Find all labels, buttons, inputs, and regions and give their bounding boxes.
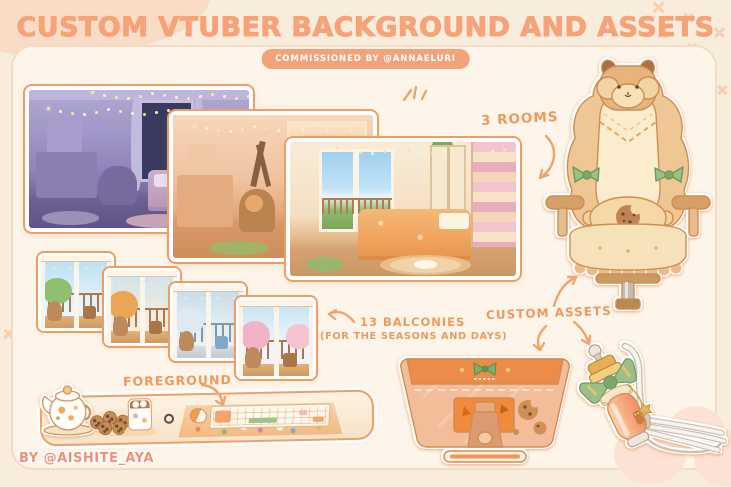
day-room-illustration <box>286 138 520 280</box>
balconies-label: 13 BALCONIES <box>360 315 465 329</box>
balcony-plush-chair <box>113 316 128 336</box>
day-room-pillow <box>439 213 468 229</box>
summer-foliage <box>42 278 71 304</box>
day-room-frog-rug <box>306 257 344 272</box>
rooms-arrow-icon <box>524 132 560 184</box>
fairy-lights-icon <box>177 295 179 297</box>
fairy-lights-icon <box>47 107 50 110</box>
fairy-lights-icon <box>45 265 47 267</box>
balcony-plush-chair <box>47 301 62 321</box>
chair-arm-post <box>689 208 698 236</box>
microphone-boom-arm-illustration <box>576 334 728 474</box>
custom-assets-arrow-up-icon <box>550 274 580 308</box>
night-room-armchair <box>99 166 136 205</box>
foreground-arrow-icon <box>200 381 228 407</box>
chair-armrest <box>546 196 584 209</box>
balcony-lintel <box>107 271 177 277</box>
balcony-table <box>283 353 296 367</box>
autumn-foliage <box>108 291 137 318</box>
balcony-frame-center <box>274 300 279 376</box>
balcony-frame-left <box>239 300 243 376</box>
balcony-table <box>83 306 96 319</box>
sunset-room-vanity <box>177 175 233 226</box>
commission-poster: CUSTOM VTUBER BACKGROUND AND ASSETS COMM… <box>0 0 731 487</box>
winter-balcony-illustration <box>170 283 246 361</box>
balcony-frame-right <box>309 300 313 376</box>
commission-badge: COMMISSIONED BY @ANNAELURI <box>261 49 470 69</box>
balconies-note: (FOR THE SEASONS AND DAYS) <box>320 331 507 342</box>
balcony-lintel <box>41 256 111 262</box>
balcony-lintel <box>239 300 313 307</box>
balcony-frame-center <box>74 256 79 328</box>
cookie-icon <box>534 422 547 435</box>
spring-blossoms <box>240 321 270 350</box>
sunset-room-mirror <box>187 144 217 178</box>
balcony-plush-chair <box>245 347 261 368</box>
deer-eye <box>635 85 639 89</box>
autumn-balcony-illustration <box>104 268 180 346</box>
fairy-lights-icon <box>111 280 113 282</box>
balconies-arrow-icon <box>326 306 356 326</box>
balcony-table <box>215 336 228 349</box>
seat-tuft <box>598 246 601 249</box>
custom-assets-arrow-right-icon <box>572 320 594 346</box>
custom-assets-arrow-down-icon <box>528 324 552 352</box>
balcony-frame-left <box>173 286 177 358</box>
chair-base <box>616 299 640 309</box>
keyboard-icon <box>209 403 331 429</box>
balcony-frame-center <box>140 271 145 343</box>
x-doodle-icon <box>716 84 728 96</box>
day-room-plush-shelves <box>471 142 516 247</box>
keyboard-orange-keys <box>215 410 232 422</box>
band-dot <box>506 368 510 372</box>
balcony-frame-left <box>41 256 45 328</box>
spring-balcony-illustration <box>236 297 316 379</box>
page-title: CUSTOM VTUBER BACKGROUND AND ASSETS <box>0 12 731 43</box>
night-room-vanity <box>36 152 98 198</box>
sparkle-doodle-icon <box>400 80 428 104</box>
cookie-icon <box>98 421 112 435</box>
monitor-back-illustration <box>394 354 576 466</box>
balcony-plush-chair <box>179 331 194 351</box>
keyboard-pink-key <box>299 410 307 415</box>
balcony-table <box>149 321 162 334</box>
cocoa-mug <box>128 398 153 430</box>
deer-gaming-chair-illustration <box>540 58 716 310</box>
crumb <box>513 429 519 435</box>
deer-eye <box>617 85 621 89</box>
fairy-lights-icon <box>193 124 196 127</box>
keyboard-green-keys <box>249 418 277 424</box>
balcony-frame-center <box>206 286 211 358</box>
chair-arm-post <box>558 208 567 236</box>
summer-balcony-illustration <box>38 253 114 331</box>
keyboard-orange-key <box>313 417 324 422</box>
sunset-room-rug <box>209 241 269 255</box>
stand-hole <box>478 432 492 444</box>
night-room-mirror <box>47 120 82 156</box>
chair-armrest <box>672 196 710 209</box>
winter-foliage <box>174 308 203 334</box>
artist-credit: BY @AISHITE_AYA <box>19 451 154 466</box>
balcony-frame-left <box>107 271 111 343</box>
balcony-lintel <box>173 286 243 292</box>
teapot-icon <box>39 373 94 436</box>
chair-seat <box>570 224 686 270</box>
marshmallows <box>130 400 150 408</box>
band-dot <box>460 368 464 372</box>
